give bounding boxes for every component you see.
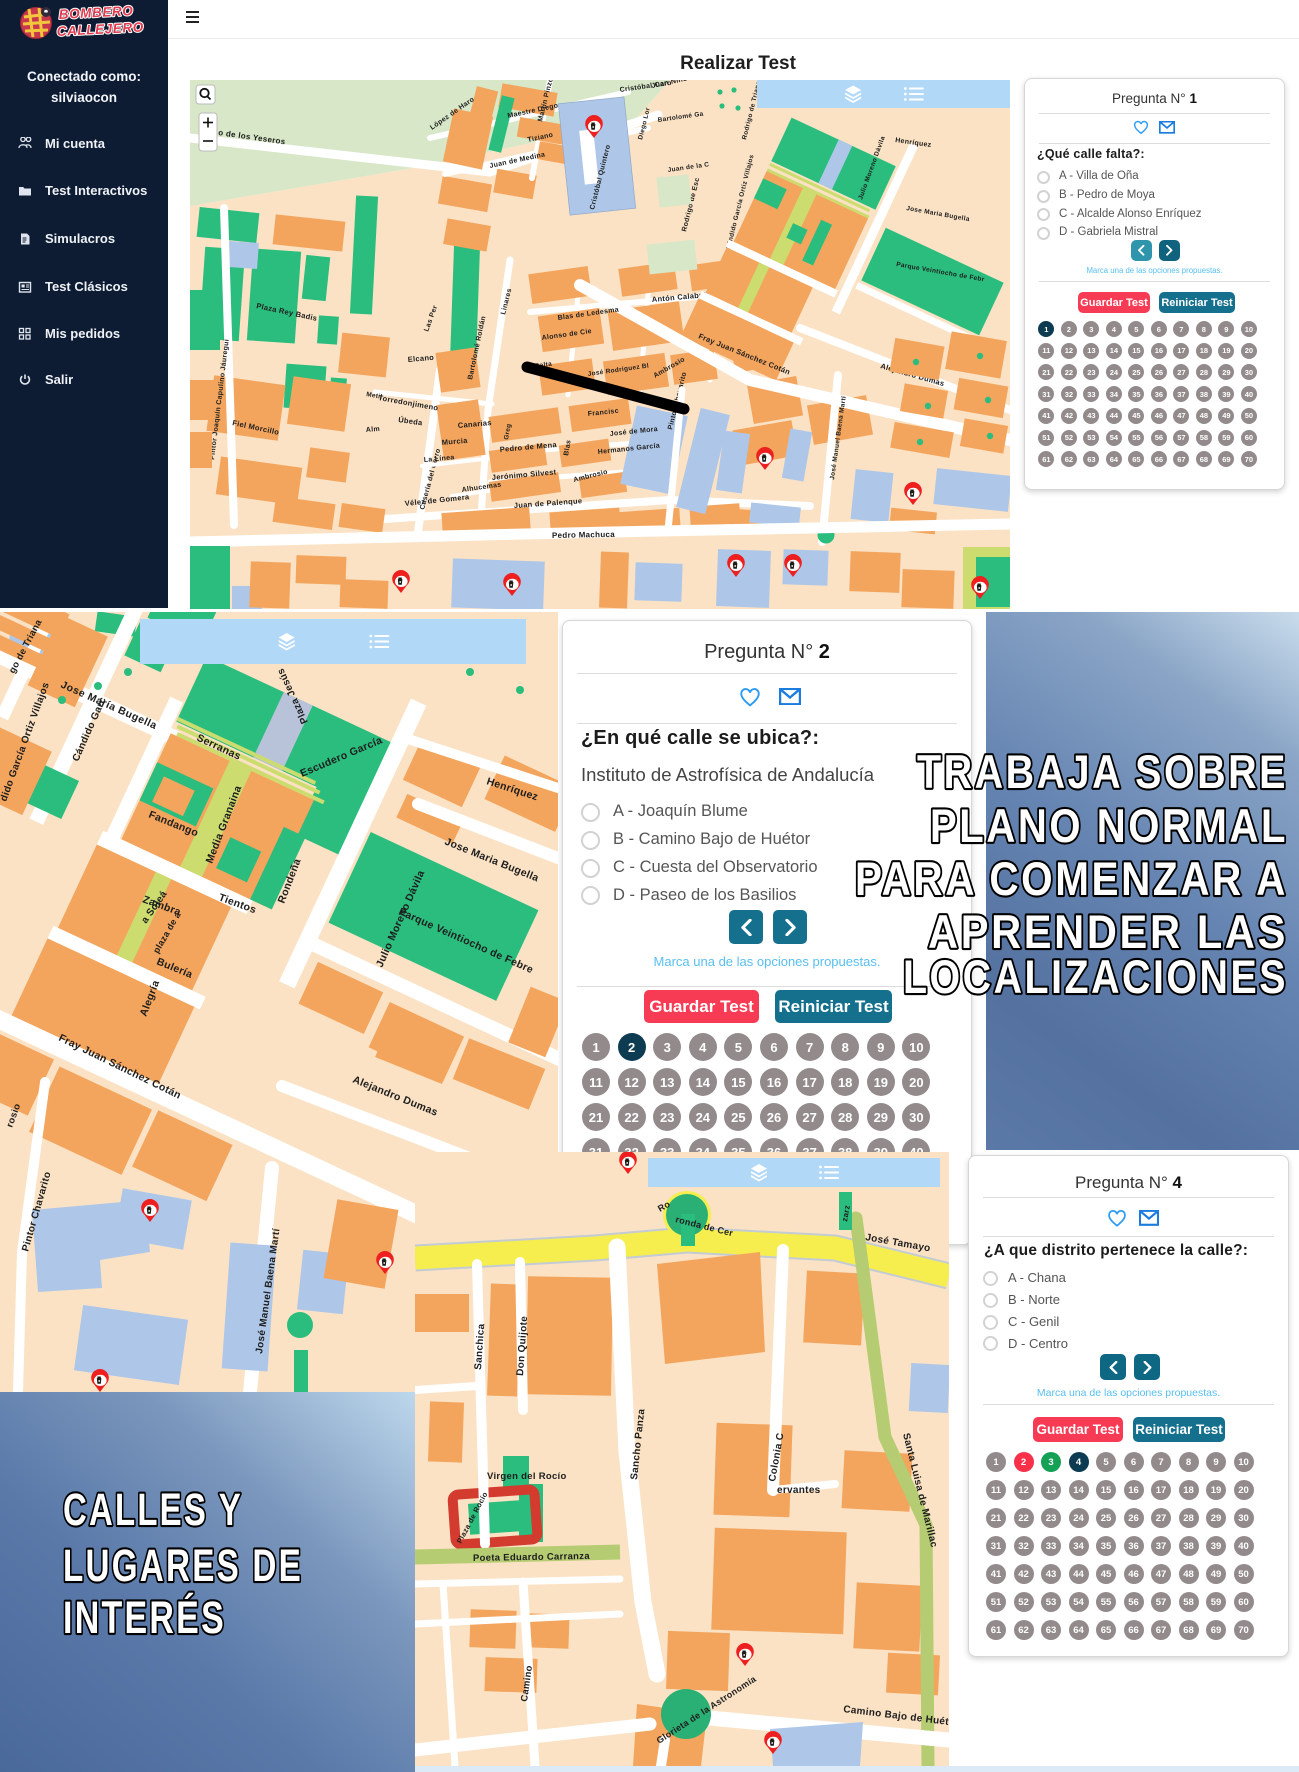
svg-text:Poeta Eduardo Carranza: Poeta Eduardo Carranza — [473, 1551, 591, 1564]
svg-text:TRABAJA SOBRE: TRABAJA SOBRE — [917, 745, 1288, 798]
svg-text:ervantes: ervantes — [777, 1485, 821, 1496]
svg-text:CALLEJERO: CALLEJERO — [56, 19, 144, 39]
svg-text:LOCALIZACIONES: LOCALIZACIONES — [903, 950, 1288, 1003]
svg-text:LUGARES DE: LUGARES DE — [63, 1540, 303, 1591]
svg-text:Alm: Alm — [366, 426, 381, 434]
svg-text:PARA COMENZAR A: PARA COMENZAR A — [855, 852, 1288, 905]
svg-text:PLANO NORMAL: PLANO NORMAL — [930, 799, 1288, 852]
svg-text:CALLES Y: CALLES Y — [63, 1484, 243, 1535]
svg-text:INTERÉS: INTERÉS — [63, 1592, 226, 1643]
svg-text:Pedro Machuca: Pedro Machuca — [552, 530, 615, 540]
svg-text:Virgen del Rocío: Virgen del Rocío — [487, 1471, 567, 1482]
svg-text:BOMBERO: BOMBERO — [58, 4, 133, 22]
